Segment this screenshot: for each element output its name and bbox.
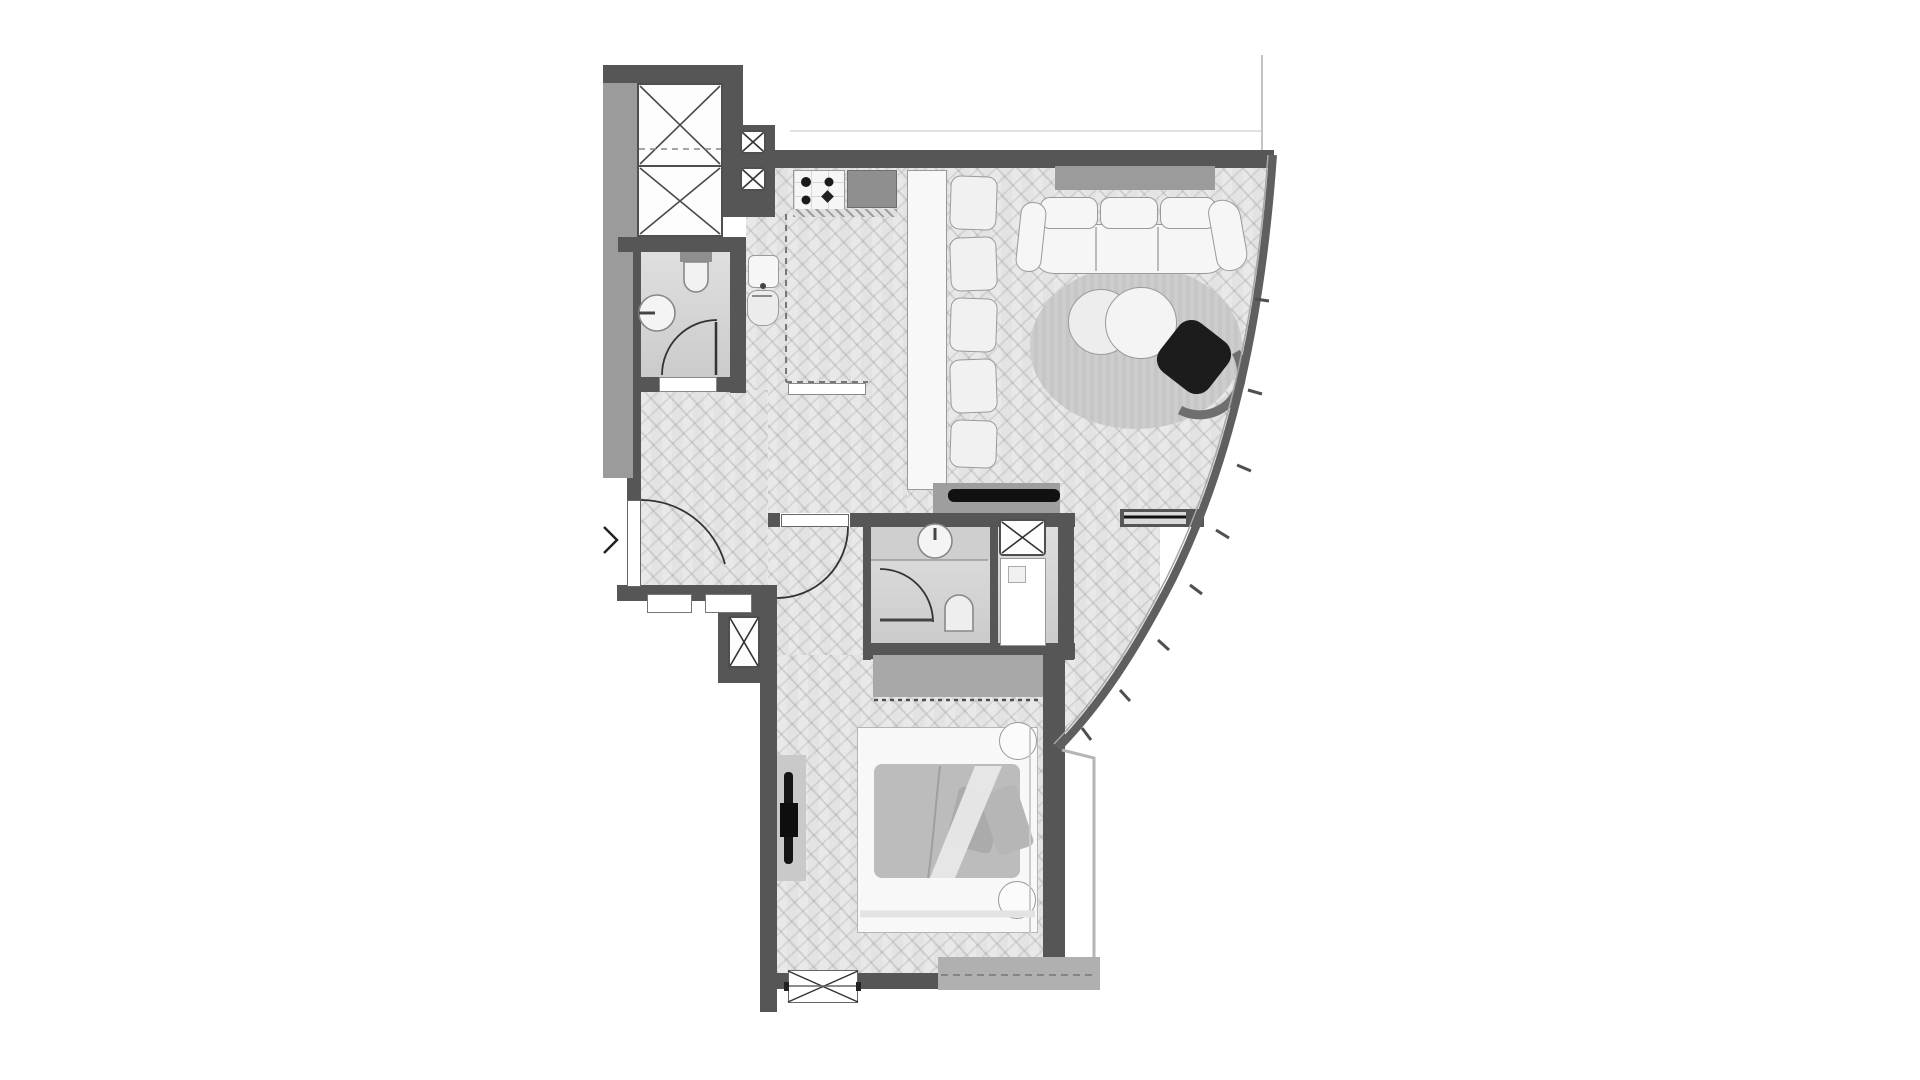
washer-box bbox=[999, 519, 1046, 556]
passage-floor bbox=[1065, 513, 1160, 750]
kitchen-threshold bbox=[788, 383, 866, 395]
kitchen-backsplash-hatch bbox=[793, 209, 897, 217]
bench-cushion-1 bbox=[949, 175, 998, 231]
wall-hall-shaft-bottom bbox=[718, 668, 760, 683]
entry-arrow bbox=[604, 527, 617, 553]
kitchen-tall-appliance bbox=[747, 290, 779, 326]
entry-door-leaf bbox=[627, 500, 641, 587]
wall-bath1-left bbox=[633, 237, 641, 500]
bedroom-window bbox=[788, 970, 858, 1003]
toilet1-tank bbox=[680, 252, 712, 262]
wall-bedroom-left bbox=[760, 598, 777, 1012]
bench-cushion-4 bbox=[949, 358, 998, 414]
duct-box-2 bbox=[740, 167, 766, 191]
sofa-back-cushion-2 bbox=[1100, 197, 1158, 229]
wardrobe bbox=[873, 655, 1043, 697]
balcony-slab bbox=[938, 957, 1100, 990]
shower-drain bbox=[1008, 566, 1026, 583]
wall-shaft-step bbox=[723, 83, 743, 131]
hall-shaft-box bbox=[728, 616, 760, 668]
bed-pillow-2 bbox=[998, 881, 1036, 919]
elevator-shaft bbox=[637, 83, 723, 237]
wall-hall-shaft-left bbox=[718, 618, 728, 668]
kitchen-floor bbox=[746, 168, 907, 513]
party-wall bbox=[603, 65, 637, 478]
duct-box-1 bbox=[740, 130, 766, 154]
floor-plan bbox=[0, 0, 1920, 1080]
sofa-back-cushion-1 bbox=[1040, 197, 1098, 229]
sofa-seat bbox=[1032, 224, 1228, 274]
wall-entry-bottom bbox=[617, 585, 777, 601]
bed-pillow-1 bbox=[999, 722, 1037, 760]
wall-bedroom-right bbox=[1043, 643, 1065, 957]
bedroom-door-leaf bbox=[781, 514, 849, 527]
bedroom-tv-mount bbox=[780, 803, 798, 837]
wall-bath2-right bbox=[1058, 515, 1074, 660]
bath1-threshold bbox=[659, 377, 717, 392]
wall-bedroom-bottom-b bbox=[858, 973, 940, 989]
wall-bath1-bottom-b bbox=[716, 377, 746, 392]
kitchen-island bbox=[907, 170, 947, 490]
wall-divider-a bbox=[768, 513, 780, 527]
wall-niche-1 bbox=[647, 594, 692, 613]
bench-cushion-2 bbox=[949, 236, 998, 292]
wall-bedroom-bottom-a bbox=[760, 973, 788, 989]
facade-cabinet-inner bbox=[1124, 512, 1186, 524]
wall-bath2-left bbox=[863, 527, 871, 660]
terrace-edge bbox=[1062, 750, 1094, 957]
bathroom1-floor bbox=[637, 250, 730, 378]
cooktop bbox=[793, 170, 845, 212]
kitchen-sink bbox=[748, 255, 779, 288]
wall-bath2-divider bbox=[990, 520, 998, 643]
corridor-floor bbox=[768, 527, 863, 660]
wall-top-left bbox=[603, 65, 743, 83]
wall-entry-door-head bbox=[627, 478, 641, 502]
tv-screen bbox=[948, 489, 1060, 502]
bench-cushion-3 bbox=[949, 297, 998, 353]
ac-bulkhead bbox=[1055, 166, 1215, 190]
entry-hall-floor bbox=[641, 390, 768, 587]
bathroom2-vanity bbox=[871, 527, 990, 560]
wall-niche-2 bbox=[705, 594, 752, 613]
kitchen-counter-dark bbox=[847, 170, 897, 208]
bench-cushion-5 bbox=[949, 419, 998, 469]
wall-bath1-bottom-a bbox=[633, 377, 662, 392]
wall-bath1-right bbox=[730, 237, 746, 393]
